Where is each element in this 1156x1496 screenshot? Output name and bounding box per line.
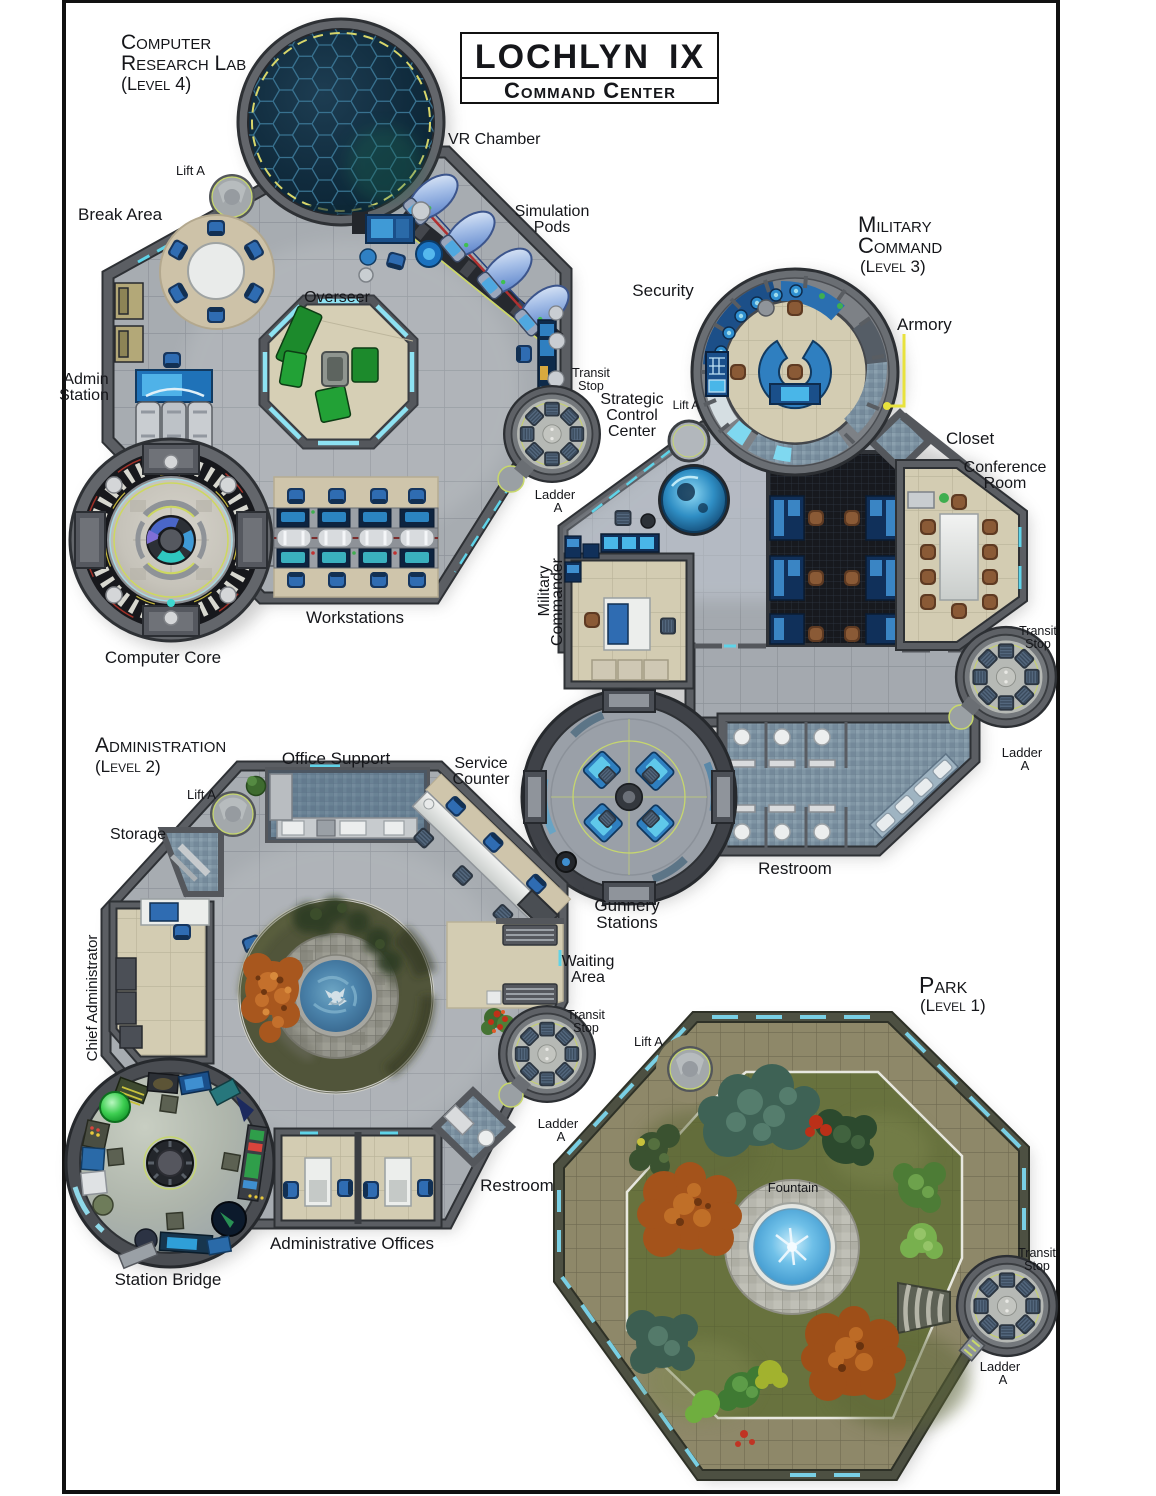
svg-text:Armory: Armory (897, 315, 952, 334)
svg-text:Pods: Pods (534, 219, 570, 236)
svg-text:Station: Station (59, 387, 109, 404)
svg-text:Park: Park (919, 972, 968, 998)
svg-text:Closet: Closet (946, 429, 994, 448)
svg-text:Stations: Stations (596, 913, 657, 932)
svg-text:Lift A: Lift A (187, 787, 216, 802)
svg-text:Room: Room (984, 475, 1027, 492)
svg-text:A: A (999, 1372, 1008, 1387)
svg-text:Command Center: Command Center (504, 78, 676, 103)
svg-text:Stop: Stop (1025, 637, 1051, 651)
svg-text:Storage: Storage (110, 826, 166, 843)
svg-text:Computer Core: Computer Core (105, 648, 221, 667)
svg-text:(Level 4): (Level 4) (121, 74, 191, 94)
svg-text:(Level 3): (Level 3) (860, 257, 926, 276)
svg-text:Center: Center (608, 423, 657, 440)
svg-text:Transit: Transit (1019, 624, 1057, 638)
svg-text:Workstations: Workstations (306, 608, 404, 627)
svg-text:Station Bridge: Station Bridge (115, 1270, 222, 1289)
svg-text:Transit: Transit (572, 366, 610, 380)
svg-text:(Level 1): (Level 1) (920, 996, 986, 1015)
svg-text:Simulation: Simulation (515, 203, 590, 220)
svg-text:Counter: Counter (453, 771, 511, 788)
svg-text:Transit: Transit (567, 1008, 605, 1022)
svg-text:Waiting: Waiting (562, 953, 615, 970)
svg-text:Transit: Transit (1018, 1246, 1056, 1260)
svg-text:Service: Service (454, 755, 507, 772)
svg-text:Overseer: Overseer (304, 289, 370, 306)
svg-text:Research Lab: Research Lab (121, 52, 246, 75)
svg-text:Security: Security (632, 281, 694, 300)
svg-text:(Level 2): (Level 2) (95, 757, 161, 776)
svg-text:A: A (1021, 758, 1030, 773)
svg-text:Restroom: Restroom (758, 859, 832, 878)
svg-text:Strategic: Strategic (600, 391, 663, 408)
svg-text:VR Chamber: VR Chamber (448, 131, 541, 148)
svg-text:Commander: Commander (549, 557, 566, 646)
svg-text:Computer: Computer (121, 31, 211, 54)
svg-text:Stop: Stop (573, 1021, 599, 1035)
svg-text:Fountain: Fountain (768, 1180, 819, 1195)
svg-text:Lift A: Lift A (176, 163, 205, 178)
svg-text:Admin: Admin (63, 371, 108, 388)
svg-text:Lift A: Lift A (673, 398, 700, 412)
svg-text:A: A (557, 1129, 566, 1144)
svg-text:Chief Administrator: Chief Administrator (84, 935, 101, 1062)
svg-text:Administrative Offices: Administrative Offices (270, 1234, 434, 1253)
svg-text:LOCHLYN IX: LOCHLYN IX (475, 38, 705, 76)
svg-text:Command: Command (858, 233, 942, 258)
svg-text:A: A (554, 500, 563, 515)
svg-text:Lift A: Lift A (634, 1034, 663, 1049)
svg-text:Office Support: Office Support (282, 749, 391, 768)
svg-text:Conference: Conference (964, 459, 1047, 476)
svg-text:Restroom: Restroom (480, 1176, 554, 1195)
svg-text:Control: Control (606, 407, 658, 424)
svg-text:Break Area: Break Area (78, 205, 163, 224)
svg-text:Area: Area (571, 969, 605, 986)
svg-text:Administration: Administration (95, 734, 226, 757)
svg-text:Stop: Stop (1024, 1259, 1050, 1273)
